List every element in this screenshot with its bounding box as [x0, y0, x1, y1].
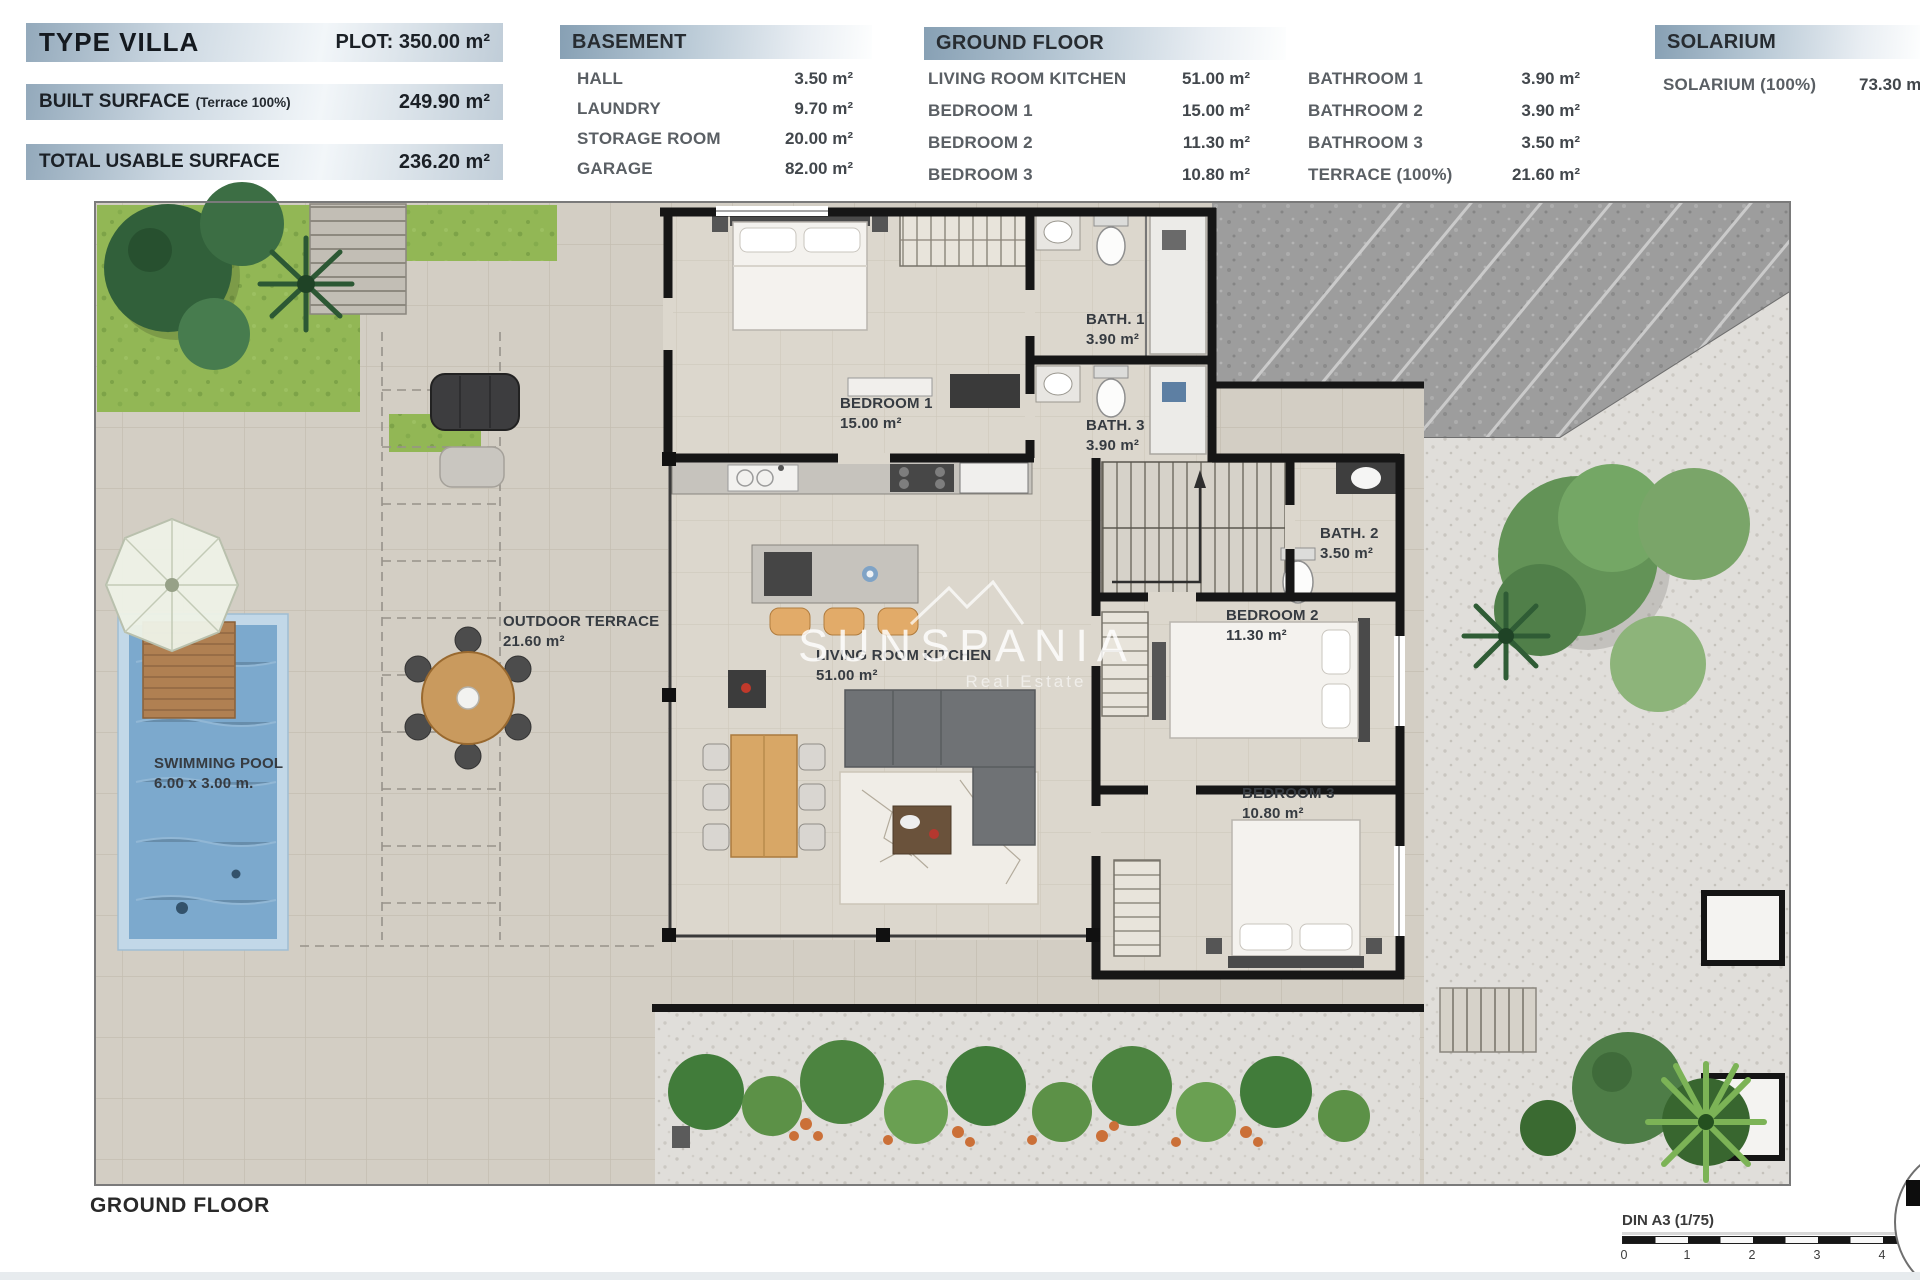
- label-bedroom2: BEDROOM 2 11.30 m²: [1226, 606, 1319, 646]
- entry-stairs: [310, 204, 406, 314]
- room-area: 3.50 m²: [1320, 544, 1379, 564]
- dining-chair: [703, 824, 729, 850]
- row-label: BEDROOM 3: [928, 165, 1033, 185]
- gf-row: BEDROOM 211.30 m²: [928, 127, 1250, 159]
- basement-row: HALL3.50 m²: [577, 64, 853, 94]
- solarium-header: SOLARIUM: [1655, 25, 1920, 59]
- exterior-steps: [1440, 988, 1536, 1052]
- bed3-headboard: [1228, 956, 1364, 968]
- row-value: 20.00 m²: [785, 129, 853, 149]
- room-name: BATH. 1: [1086, 310, 1145, 330]
- basement-row: GARAGE82.00 m²: [577, 154, 853, 184]
- row-label: BATHROOM 1: [1308, 69, 1423, 89]
- solarium-row: SOLARIUM (100%) 73.30 m²: [1663, 70, 1920, 100]
- bottom-edge-strip: [0, 1272, 1920, 1280]
- row-value: 3.90 m²: [1521, 101, 1580, 121]
- scale-tick: 0: [1616, 1248, 1632, 1262]
- dining-chair: [799, 784, 825, 810]
- row-value: 3.50 m²: [1521, 133, 1580, 153]
- bed2-bench: [1152, 642, 1166, 720]
- built-surface-label: BUILT SURFACE: [39, 91, 190, 112]
- room-area: 51.00 m²: [816, 666, 991, 686]
- gf-row: BATHROOM 33.50 m²: [1308, 127, 1580, 159]
- wardrobe3: [1114, 860, 1160, 956]
- room-area: 6.00 x 3.00 m.: [154, 774, 283, 794]
- type-villa-title: TYPE VILLA: [39, 27, 199, 58]
- room-name: BATH. 2: [1320, 524, 1379, 544]
- dining-chair: [799, 744, 825, 770]
- gf-row: BATHROOM 23.90 m²: [1308, 95, 1580, 127]
- gf-row: BEDROOM 310.80 m²: [928, 159, 1250, 191]
- row-label: BEDROOM 1: [928, 101, 1033, 121]
- outdoor-sofa: [431, 374, 519, 430]
- stove: [890, 464, 954, 492]
- label-bedroom3: BEDROOM 3 10.80 m²: [1242, 784, 1335, 824]
- room-area: 15.00 m²: [840, 414, 933, 434]
- room-area: 10.80 m²: [1242, 804, 1335, 824]
- built-surface-label-group: BUILT SURFACE(Terrace 100%): [39, 91, 291, 113]
- total-usable-label: TOTAL USABLE SURFACE: [39, 151, 280, 173]
- room-area: 11.30 m²: [1226, 626, 1319, 646]
- ground-floor-list-right: BATHROOM 13.90 m² BATHROOM 23.90 m² BATH…: [1308, 63, 1580, 191]
- room-area: 3.90 m²: [1086, 436, 1145, 456]
- room-name: BEDROOM 3: [1242, 784, 1335, 804]
- label-bath2: BATH. 2 3.50 m²: [1320, 524, 1379, 564]
- row-value: 21.60 m²: [1512, 165, 1580, 185]
- label-outdoor-terrace: OUTDOOR TERRACE 21.60 m²: [503, 612, 659, 652]
- floorplan-page: TYPE VILLA PLOT: 350.00 m² BUILT SURFACE…: [0, 0, 1920, 1280]
- row-value: 11.30 m²: [1183, 133, 1250, 153]
- sink1: [1044, 221, 1072, 243]
- scale-bar: [1622, 1236, 1920, 1244]
- coffee-table: [893, 806, 951, 854]
- row-value: 10.80 m²: [1182, 165, 1250, 185]
- dining-chair: [703, 784, 729, 810]
- room-name: BEDROOM 1: [840, 394, 933, 414]
- floor-title: GROUND FLOOR: [90, 1194, 270, 1218]
- built-surface-value: 249.90 m²: [399, 91, 490, 114]
- label-swimming-pool: SWIMMING POOL 6.00 x 3.00 m.: [154, 754, 283, 794]
- row-value: 73.30 m²: [1859, 75, 1920, 95]
- label-bath3: BATH. 3 3.90 m²: [1086, 416, 1145, 456]
- parasol: [106, 519, 238, 651]
- ground-floor-list-left: LIVING ROOM KITCHEN51.00 m² BEDROOM 115.…: [928, 63, 1250, 191]
- scale-tick: 2: [1744, 1248, 1760, 1262]
- label-living: LIVING ROOM KITCHEN 51.00 m²: [816, 646, 991, 686]
- stool: [824, 608, 864, 635]
- gf-row: LIVING ROOM KITCHEN51.00 m²: [928, 63, 1250, 95]
- toilet3: [1097, 379, 1125, 417]
- total-usable-bar: TOTAL USABLE SURFACE 236.20 m²: [26, 144, 503, 180]
- sink2: [1351, 467, 1381, 489]
- row-label: GARAGE: [577, 159, 653, 179]
- scale-tick: 4: [1874, 1248, 1890, 1262]
- gf-row: BATHROOM 13.90 m²: [1308, 63, 1580, 95]
- row-label: HALL: [577, 69, 623, 89]
- sink3: [1044, 373, 1072, 395]
- room-area: 3.90 m²: [1086, 330, 1145, 350]
- page-marker: [1906, 1180, 1920, 1206]
- wardrobe2: [1102, 612, 1148, 716]
- dining-chair: [703, 744, 729, 770]
- label-bath1: BATH. 1 3.90 m²: [1086, 310, 1145, 350]
- room-name: BEDROOM 2: [1226, 606, 1319, 626]
- built-surface-note: (Terrace 100%): [196, 95, 291, 110]
- gf-row: BEDROOM 115.00 m²: [928, 95, 1250, 127]
- room-name: BATH. 3: [1086, 416, 1145, 436]
- basement-row: LAUNDRY9.70 m²: [577, 94, 853, 124]
- room-name: SWIMMING POOL: [154, 754, 283, 774]
- staircase: [1102, 462, 1288, 594]
- row-value: 9.70 m²: [794, 99, 853, 119]
- ground-floor-header: GROUND FLOOR: [924, 27, 1286, 60]
- toilet1: [1097, 227, 1125, 265]
- room-name: LIVING ROOM KITCHEN: [816, 646, 991, 666]
- row-value: 3.90 m²: [1521, 69, 1580, 89]
- fridge: [960, 463, 1028, 493]
- total-usable-value: 236.20 m²: [399, 151, 490, 174]
- plot-value: PLOT: 350.00 m²: [335, 31, 490, 54]
- stool: [770, 608, 810, 635]
- row-label: SOLARIUM (100%): [1663, 75, 1816, 95]
- row-label: BATHROOM 3: [1308, 133, 1423, 153]
- scale-label: DIN A3 (1/75): [1622, 1212, 1714, 1229]
- row-value: 82.00 m²: [785, 159, 853, 179]
- room-name: OUTDOOR TERRACE: [503, 612, 659, 632]
- light-post: [672, 1126, 690, 1148]
- floor-plan-drawing: [0, 0, 1920, 1280]
- stool: [878, 608, 918, 635]
- row-value: 51.00 m²: [1182, 69, 1250, 89]
- scale-tick: 1: [1679, 1248, 1695, 1262]
- room-area: 21.60 m²: [503, 632, 659, 652]
- type-villa-bar: TYPE VILLA PLOT: 350.00 m²: [26, 23, 503, 62]
- dining-chair: [799, 824, 825, 850]
- built-surface-bar: BUILT SURFACE(Terrace 100%) 249.90 m²: [26, 84, 503, 120]
- row-value: 3.50 m²: [794, 69, 853, 89]
- row-value: 15.00 m²: [1182, 101, 1250, 121]
- scale-tick: 3: [1809, 1248, 1825, 1262]
- row-label: TERRACE (100%): [1308, 165, 1453, 185]
- row-label: STORAGE ROOM: [577, 129, 721, 149]
- row-label: BATHROOM 2: [1308, 101, 1423, 121]
- tv-unit: [950, 374, 1020, 408]
- bed2-headboard: [1358, 618, 1370, 742]
- gf-row: TERRACE (100%)21.60 m²: [1308, 159, 1580, 191]
- basement-header: BASEMENT: [560, 25, 872, 59]
- row-label: LAUNDRY: [577, 99, 661, 119]
- planter-box: [1704, 893, 1782, 963]
- row-label: LIVING ROOM KITCHEN: [928, 69, 1126, 89]
- outdoor-table: [440, 447, 504, 487]
- scale-bar-topline: [1622, 1232, 1920, 1235]
- row-label: BEDROOM 2: [928, 133, 1033, 153]
- basement-list: HALL3.50 m² LAUNDRY9.70 m² STORAGE ROOM2…: [577, 64, 853, 184]
- basement-row: STORAGE ROOM20.00 m²: [577, 124, 853, 154]
- label-bedroom1: BEDROOM 1 15.00 m²: [840, 394, 933, 434]
